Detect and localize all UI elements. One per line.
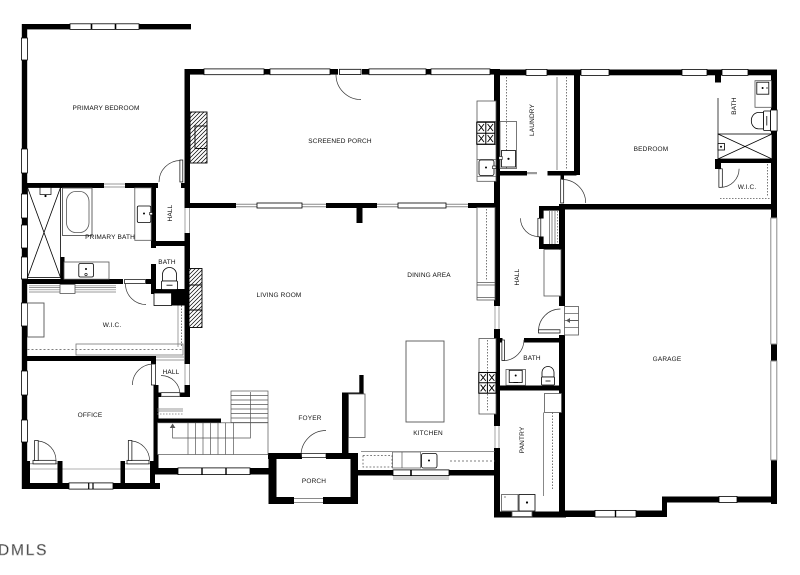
svg-text:SCREENED PORCH: SCREENED PORCH — [308, 138, 372, 145]
svg-text:BATH: BATH — [731, 97, 738, 115]
svg-text:PRIMARY BATH: PRIMARY BATH — [85, 234, 135, 241]
svg-text:W.I.C.: W.I.C. — [738, 184, 757, 191]
svg-text:LIVING ROOM: LIVING ROOM — [257, 292, 302, 299]
svg-text:GARAGE: GARAGE — [653, 356, 682, 363]
svg-text:PRIMARY BEDROOM: PRIMARY BEDROOM — [72, 105, 139, 112]
svg-text:PORCH: PORCH — [302, 478, 326, 485]
svg-text:DMLS: DMLS — [0, 542, 48, 559]
svg-text:KITCHEN: KITCHEN — [413, 430, 443, 437]
svg-text:BEDROOM: BEDROOM — [634, 146, 669, 153]
svg-text:BATH: BATH — [158, 259, 176, 266]
svg-text:W.I.C.: W.I.C. — [103, 322, 122, 329]
svg-text:BATH: BATH — [523, 355, 541, 362]
svg-text:LAUNDRY: LAUNDRY — [529, 103, 536, 136]
svg-text:HALL: HALL — [163, 369, 180, 376]
svg-text:DINING AREA: DINING AREA — [407, 272, 451, 279]
svg-text:HALL: HALL — [167, 204, 174, 221]
svg-text:OFFICE: OFFICE — [78, 412, 103, 419]
svg-text:PANTRY: PANTRY — [519, 426, 526, 453]
svg-text:FOYER: FOYER — [298, 415, 321, 422]
svg-text:HALL: HALL — [514, 268, 521, 285]
